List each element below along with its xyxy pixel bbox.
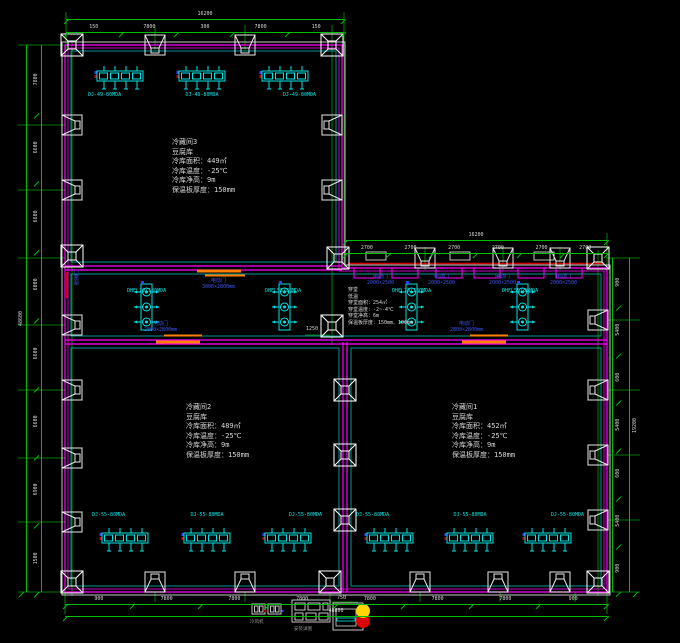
dim-value: 2700 <box>563 244 607 253</box>
door-leaf <box>470 335 508 337</box>
evaporator-unit <box>260 66 309 89</box>
room-info-line: 冷库净高：9m <box>186 441 249 451</box>
door-size: 2000×2500 <box>489 280 516 286</box>
dim-value: 6600 <box>31 387 41 455</box>
room3-info-block: 冷藏间3豆腐库冷库面积：449㎡冷库温度：-25℃冷库净高：9m保温板厚度：15… <box>172 138 235 195</box>
dim-value: 2700 <box>432 244 476 253</box>
dock-door-labels: 电动门 2000×2500 电动门 2000×2500 电动门 2000×250… <box>350 274 594 286</box>
dim-value: 300 <box>177 23 233 32</box>
door-size: 3000×2800mm <box>202 284 235 290</box>
dim-left-overall: 48600 <box>16 45 27 592</box>
room-info-line: 冷库净高：9m <box>172 176 235 186</box>
insulated-door <box>65 272 68 298</box>
room2-info-block: 冷藏间2豆腐库冷库面积：489㎡冷库温度：-25℃冷库净高：9m保温板厚度：15… <box>186 403 249 460</box>
sliding-door <box>462 341 506 344</box>
dim-value: 1500 <box>31 524 41 592</box>
evaporator-model-label: DJ-55-80MDA <box>551 512 584 518</box>
evaporator-unit <box>365 528 414 551</box>
room-info-line: 冷库温度：-25℃ <box>172 167 235 177</box>
room-info-line: 冷库面积：452㎡ <box>452 422 515 432</box>
dim-value: 6600 <box>31 319 41 387</box>
dim-value: 7800 <box>233 23 289 32</box>
air-cooler-label: DHFL70/100MDA <box>392 288 431 294</box>
dim-value: 6900 <box>31 455 41 523</box>
room-info-line: 豆腐库 <box>452 413 515 423</box>
column <box>334 444 356 466</box>
room-info-line: 冷库面积：489㎡ <box>186 422 249 432</box>
room-info-line: 冷藏间2 <box>186 403 249 413</box>
door-leaf <box>205 275 245 277</box>
evaporator-unit <box>182 528 231 551</box>
dim-extension-segments: 270027002700270027002700 <box>345 244 607 254</box>
dim-value: 19200 <box>630 258 640 592</box>
cad-drawing-canvas: 冷藏间3豆腐库冷库面积：449㎡冷库温度：-25℃冷库净高：9m保温板厚度：15… <box>0 0 680 643</box>
dim-value: 900 <box>613 544 623 592</box>
column <box>334 509 356 531</box>
interior-dimension: 1250 <box>306 326 318 332</box>
door-label-top: 电动门 3000×2800mm <box>202 278 235 290</box>
door-size: 2000×2500 <box>428 280 455 286</box>
ceiling-evaporators <box>95 66 572 551</box>
dim-value: 16200 <box>66 10 344 19</box>
room-info-line: 冷藏间3 <box>172 138 235 148</box>
evaporator-labels-bottom-right: DJ-55-80MDADJ-55-80MDADJ-55-80MDA <box>356 512 584 518</box>
dim-value: 7800 <box>336 595 404 604</box>
legend-item1-label: 冷风机 <box>250 619 264 625</box>
dim-value: 7800 <box>201 595 269 604</box>
room-info-line: 冷库温度：-25℃ <box>452 432 515 442</box>
room-info-line: 冷库面积：449㎡ <box>172 157 235 167</box>
room-info-line: 保温板厚度：150mm <box>452 451 515 461</box>
corridor-note-line: 保温板厚度：150mm、100mm <box>348 320 413 327</box>
dim-value: 6000 <box>31 250 41 318</box>
room-info-line: 冷藏间1 <box>452 403 515 413</box>
door-size: 2800×2800mm <box>450 327 483 333</box>
door-size: 2000×2500 <box>550 280 577 286</box>
dim-value: 7800 <box>472 595 540 604</box>
dim-right-segments: 900540060054006005400900 <box>612 258 623 592</box>
evaporator-labels-top: DJ-49-80MDADJ-49-80MDADJ-49-80MDA <box>88 92 316 98</box>
dim-value: 7800 <box>31 45 41 113</box>
dim-value: 5400 <box>613 497 623 545</box>
columns <box>61 34 609 593</box>
evaporator-model-label: DJ-55-80MDA <box>453 512 486 518</box>
dim-value: 16200 <box>345 231 607 240</box>
dim-bottom-overall: 48600 <box>65 607 607 617</box>
dim-value: 5400 <box>613 306 623 354</box>
air-cooler-label: DHFL70/100MDA <box>127 288 166 294</box>
door-size: 2800×2800mm <box>144 327 177 333</box>
dim-top-segments: 15078003007800150 <box>66 23 344 33</box>
room-info-line: 保温板厚度：150mm <box>186 451 249 461</box>
dim-value: 48600 <box>65 607 607 616</box>
dim-value: 6600 <box>31 113 41 181</box>
dim-value: 5400 <box>613 401 623 449</box>
dim-value: 7800 <box>122 23 178 32</box>
dim-value: 600 <box>613 353 623 401</box>
evaporator-model-label: DJ-55-80MDA <box>289 512 322 518</box>
sliding-door <box>156 341 200 344</box>
evaporator-model-label: DJ-55-80MDA <box>190 512 223 518</box>
dock-door-label: 电动门 2000×2500 <box>550 274 577 286</box>
room-info-line: 豆腐库 <box>186 413 249 423</box>
dim-value: 150 <box>288 23 344 32</box>
room-info-line: 保温板厚度：150mm <box>172 186 235 196</box>
evaporator-model-label: DJ-55-80MDA <box>92 512 125 518</box>
dim-value: 7800 <box>133 595 201 604</box>
air-cooler-label: DHFL55/80MDA <box>265 288 301 294</box>
dim-value: 600 <box>613 449 623 497</box>
sliding-door <box>197 270 241 273</box>
evaporator-unit <box>177 66 226 89</box>
door-label-bottom-left: 电动门 2800×2800mm <box>144 321 177 333</box>
legend-dimension: 750 <box>337 595 346 601</box>
dim-value: 900 <box>613 258 623 306</box>
dimension-extension-lines <box>18 12 640 614</box>
evaporator-model-label: DJ-49-80MDA <box>283 92 316 98</box>
evaporator-unit <box>445 528 494 551</box>
dim-left-segments: 78006600660060006600660069001500 <box>31 45 42 592</box>
room-info-line: 冷库温度：-25℃ <box>186 432 249 442</box>
dim-value: 900 <box>65 595 133 604</box>
room1-info-block: 冷藏间1豆腐库冷库面积：452㎡冷库温度：-25℃冷库净高：9m保温板厚度：15… <box>452 403 515 460</box>
dim-value: 48600 <box>16 45 26 592</box>
evaporator-model-label: DJ-55-80MDA <box>356 512 389 518</box>
dim-extension-overall: 16200 <box>345 231 607 241</box>
dim-value: 900 <box>539 595 607 604</box>
evaporator-labels-bottom-left: DJ-55-80MDADJ-55-80MDADJ-55-80MDA <box>92 512 322 518</box>
evaporator-unit <box>263 528 312 551</box>
dim-value: 2700 <box>389 244 433 253</box>
room-info-line: 豆腐库 <box>172 148 235 158</box>
evaporator-model-label: DJ-49-80MDA <box>88 92 121 98</box>
dim-value: 150 <box>66 23 122 32</box>
dim-top-overall: 16200 <box>66 10 344 20</box>
door-size: 2000×2500 <box>367 280 394 286</box>
dim-value: 2700 <box>476 244 520 253</box>
dock-door-label: 电动门 2000×2500 <box>428 274 455 286</box>
dim-value: 7800 <box>268 595 336 604</box>
air-cooler-label: DHFL55/80MDA <box>502 288 538 294</box>
door-label-bottom-right: 电动门 2800×2800mm <box>450 321 483 333</box>
door-label-left: 保温门 <box>74 270 80 285</box>
dock-door-label: 电动门 2000×2500 <box>367 274 394 286</box>
evaporator-unit <box>100 528 149 551</box>
evaporator-unit <box>523 528 572 551</box>
dock-door-label: 电动门 2000×2500 <box>489 274 516 286</box>
door-leaf <box>164 335 202 337</box>
evaporator-unit <box>95 66 144 89</box>
dim-value: 2700 <box>520 244 564 253</box>
dim-value: 2700 <box>345 244 389 253</box>
column <box>334 379 356 401</box>
dim-bottom-segments: 900780078007800780078007800900 <box>65 595 607 605</box>
dim-right-overall: 19200 <box>629 258 640 592</box>
legend-item2-label: 安装详图 <box>294 626 312 632</box>
dim-value: 6600 <box>31 182 41 250</box>
room-info-line: 冷库净高：9m <box>452 441 515 451</box>
column <box>319 571 341 593</box>
dim-value: 7800 <box>404 595 472 604</box>
evaporator-model-label: DJ-49-80MDA <box>185 92 218 98</box>
